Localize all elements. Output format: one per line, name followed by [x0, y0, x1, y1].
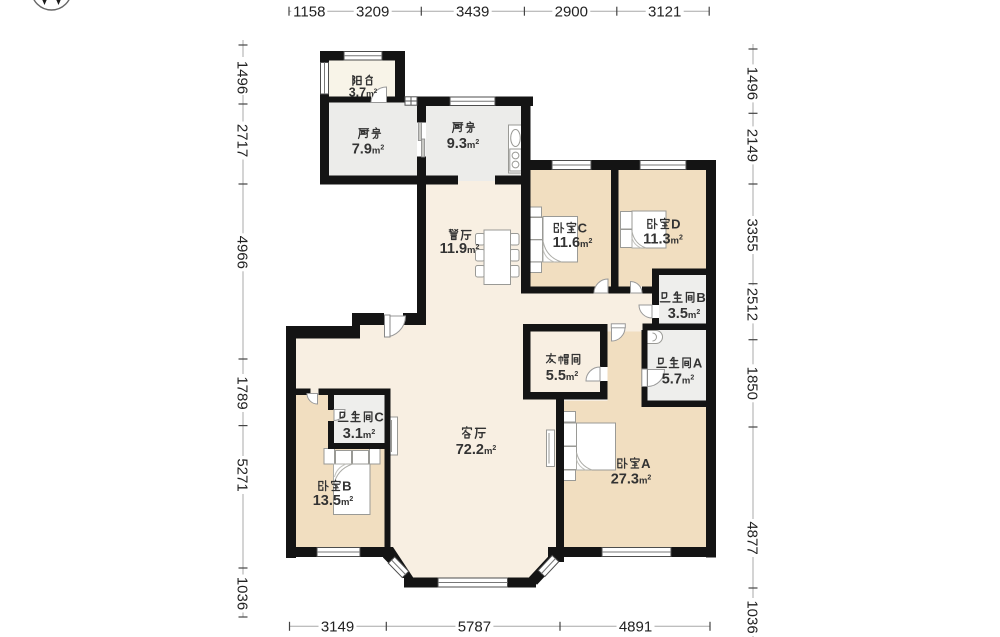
svg-text:5.7m2: 5.7m2: [662, 372, 695, 388]
svg-text:1496: 1496: [234, 61, 251, 94]
svg-text:A: A: [641, 456, 651, 471]
svg-text:4966: 4966: [234, 236, 251, 269]
svg-text:2717: 2717: [234, 124, 251, 157]
svg-text:1036: 1036: [234, 577, 251, 610]
svg-text:1158: 1158: [293, 4, 325, 21]
svg-text:4877: 4877: [744, 521, 761, 554]
svg-text:1036: 1036: [744, 600, 761, 633]
svg-text:5271: 5271: [234, 458, 251, 491]
svg-text:7.9m2: 7.9m2: [352, 142, 385, 158]
svg-text:C: C: [374, 410, 384, 425]
svg-text:3439: 3439: [456, 4, 489, 21]
svg-text:2149: 2149: [744, 129, 761, 162]
svg-text:3209: 3209: [356, 4, 389, 21]
svg-text:9.3m2: 9.3m2: [447, 136, 480, 152]
svg-text:B: B: [342, 479, 351, 494]
svg-text:3121: 3121: [648, 4, 681, 21]
svg-text:1850: 1850: [744, 367, 761, 400]
svg-text:A: A: [693, 356, 703, 371]
svg-text:D: D: [671, 217, 680, 232]
svg-text:3355: 3355: [744, 218, 761, 251]
svg-text:1789: 1789: [234, 376, 251, 409]
svg-text:5787: 5787: [458, 619, 491, 636]
svg-text:B: B: [696, 290, 705, 305]
svg-text:2512: 2512: [744, 288, 761, 321]
svg-text:2900: 2900: [555, 4, 588, 21]
svg-text:4891: 4891: [619, 619, 652, 636]
svg-text:1496: 1496: [744, 67, 761, 100]
svg-text:3.5m2: 3.5m2: [668, 306, 701, 322]
svg-text:C: C: [578, 221, 588, 236]
svg-text:3.7m2: 3.7m2: [349, 86, 378, 100]
svg-text:5.5m2: 5.5m2: [546, 368, 579, 384]
svg-text:3.1m2: 3.1m2: [343, 426, 376, 442]
svg-text:3149: 3149: [321, 619, 354, 636]
